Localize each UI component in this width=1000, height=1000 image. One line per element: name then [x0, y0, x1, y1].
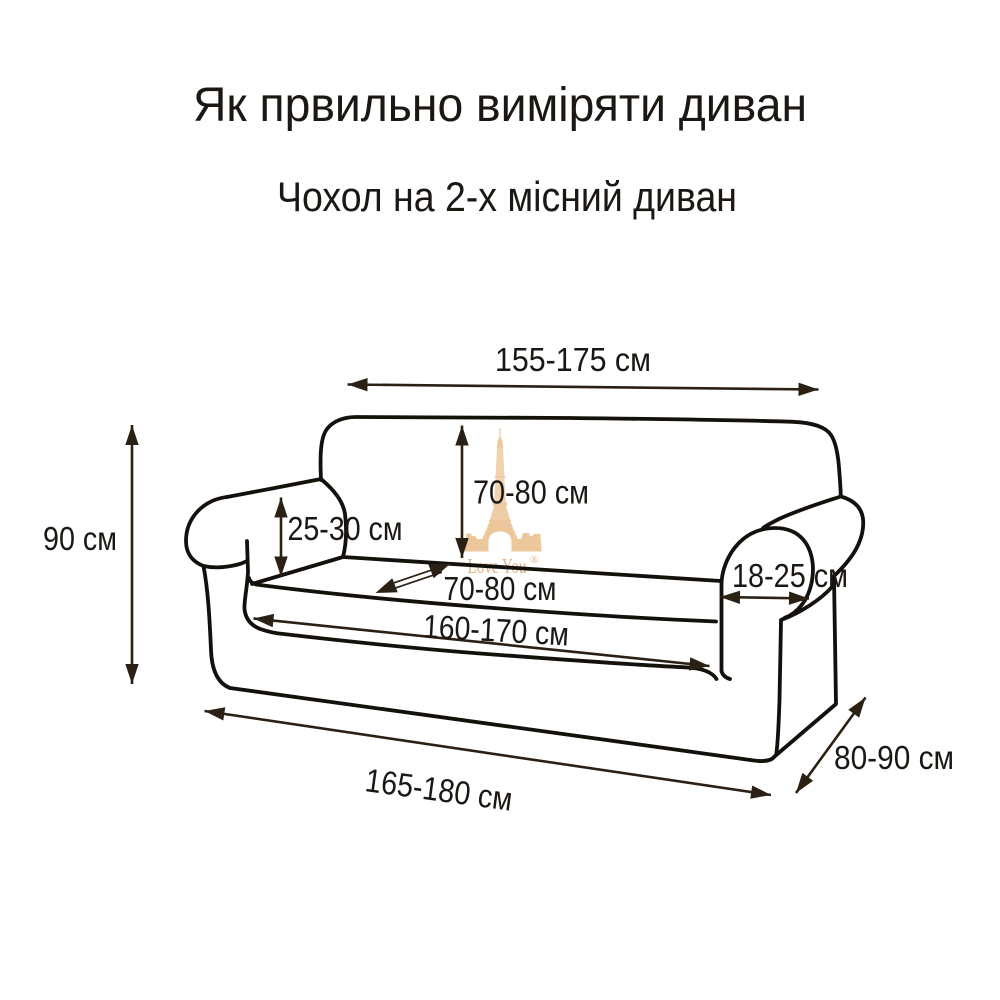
- svg-text:90 см: 90 см: [43, 520, 117, 557]
- svg-text:®: ®: [530, 554, 538, 566]
- svg-text:70-80 см: 70-80 см: [473, 474, 589, 511]
- svg-text:155-175 см: 155-175 см: [495, 341, 651, 378]
- svg-text:160-170 см: 160-170 см: [422, 607, 570, 652]
- svg-text:Як првильно виміряти диван: Як првильно виміряти диван: [193, 79, 807, 132]
- svg-text:18-25 см: 18-25 см: [732, 557, 848, 594]
- svg-text:70-80 см: 70-80 см: [444, 570, 557, 607]
- svg-text:165-180 см: 165-180 см: [363, 761, 515, 817]
- svg-text:Чохол на 2-х місний диван: Чохол на 2-х місний диван: [277, 173, 737, 220]
- svg-text:25-30 см: 25-30 см: [288, 510, 403, 547]
- svg-text:80-90 см: 80-90 см: [834, 739, 954, 776]
